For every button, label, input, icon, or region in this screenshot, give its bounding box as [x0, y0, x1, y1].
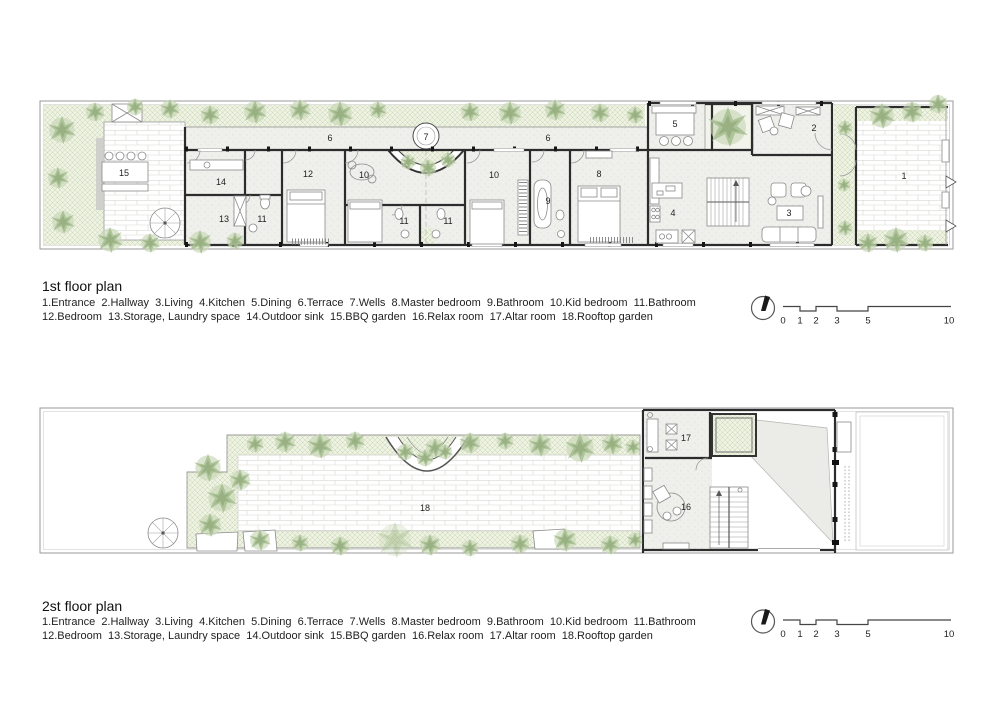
room-label: 10 [489, 170, 499, 180]
room-label: 4 [670, 208, 675, 218]
scale-tick: 10 [944, 629, 955, 640]
room-label: 7 [423, 132, 428, 142]
north-arrow-icon [752, 296, 775, 320]
room-label: 6 [545, 133, 550, 143]
plan2-right-block [643, 410, 948, 553]
room-label: 12 [303, 169, 313, 179]
room-label: 16 [681, 502, 691, 512]
spiral-stair-icon [148, 518, 178, 548]
scale-tick: 3 [834, 629, 839, 640]
scale-tick: 0 [780, 629, 785, 640]
scale-bar-1: 0 1 2 3 5 10 [752, 296, 955, 327]
scale-tick: 2 [813, 316, 818, 327]
scale-tick: 5 [865, 629, 870, 640]
plan1-legend-line1: 1.Entrance 2.Hallway 3.Living 4.Kitchen … [42, 297, 696, 309]
scale-bar-2: 0 1 2 3 5 10 [752, 609, 955, 640]
scale-tick: 5 [865, 316, 870, 327]
plan2-legend-line2: 12.Bedroom 13.Storage, Laundry space 14.… [42, 630, 653, 642]
room-label: 3 [786, 208, 791, 218]
room-label: 11 [399, 216, 408, 226]
room-label: 13 [219, 214, 229, 224]
room-label: 1 [901, 171, 906, 181]
scale-tick: 3 [834, 316, 839, 327]
room-label: 11 [257, 214, 266, 224]
scale-tick: 10 [944, 316, 955, 327]
room-label: 2 [811, 123, 816, 133]
scale-tick: 1 [797, 316, 802, 327]
scale-tick: 0 [780, 316, 785, 327]
room-label: 17 [681, 433, 691, 443]
plan1-title: 1st floor plan [42, 278, 122, 294]
room-label: 18 [420, 503, 430, 513]
plan2-legend-line1: 1.Entrance 2.Hallway 3.Living 4.Kitchen … [42, 616, 696, 628]
plan1-drawing: 15 14 13 11 12 6 7 6 10 10 11 11 9 8 5 2… [40, 94, 956, 254]
drawing-sheet: 15 14 13 11 12 6 7 6 10 10 11 11 9 8 5 2… [0, 0, 1000, 706]
plan1-annotation: 1st floor plan 1.Entrance 2.Hallway 3.Li… [42, 278, 696, 323]
room-label: 8 [596, 169, 601, 179]
plan2-drawing: 18 17 16 [40, 408, 953, 558]
room-label: 10 [359, 170, 369, 180]
room-label: 14 [216, 177, 226, 187]
room-label: 5 [672, 119, 677, 129]
stair-run [710, 487, 748, 548]
room-label: 15 [119, 168, 129, 178]
plan2-annotation: 2st floor plan 1.Entrance 2.Hallway 3.Li… [42, 598, 696, 642]
room-label: 9 [545, 196, 550, 206]
spiral-stair-icon [150, 208, 180, 238]
north-arrow-icon [752, 609, 775, 633]
room-label: 11 [443, 216, 452, 226]
scale-tick: 1 [797, 629, 802, 640]
scale-tick: 2 [813, 629, 818, 640]
stair-run [707, 178, 749, 226]
floor-plan-canvas: 15 14 13 11 12 6 7 6 10 10 11 11 9 8 5 2… [0, 0, 1000, 706]
room-label: 6 [327, 133, 332, 143]
plan2-title: 2st floor plan [42, 598, 122, 614]
plan1-legend-line2: 12.Bedroom 13.Storage, Laundry space 14.… [42, 311, 653, 323]
